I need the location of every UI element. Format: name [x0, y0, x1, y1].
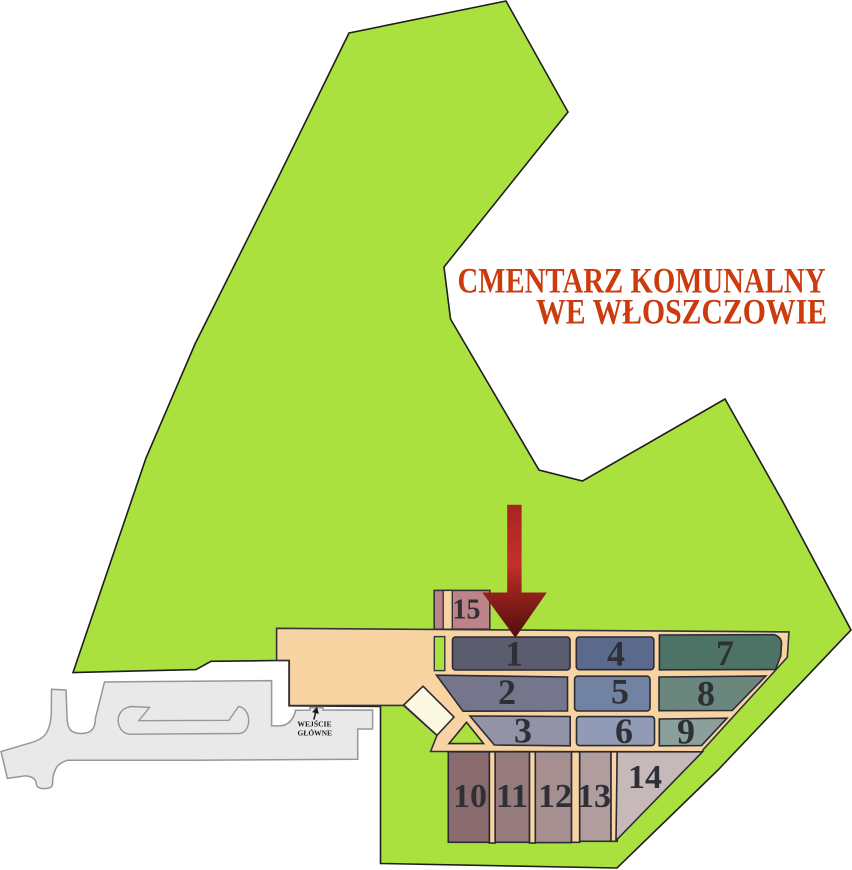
svg-text:13: 13	[577, 778, 611, 815]
svg-text:3: 3	[514, 711, 532, 751]
svg-text:5: 5	[611, 672, 629, 712]
svg-text:1: 1	[505, 634, 523, 674]
svg-text:2: 2	[498, 672, 516, 712]
svg-text:8: 8	[697, 674, 715, 714]
svg-text:4: 4	[607, 634, 625, 674]
svg-text:WEJŚCIE: WEJŚCIE	[297, 720, 332, 728]
svg-text:10: 10	[453, 778, 487, 815]
svg-text:14: 14	[628, 759, 662, 796]
svg-text:6: 6	[615, 711, 633, 751]
svg-text:15: 15	[453, 595, 481, 626]
svg-text:7: 7	[716, 633, 734, 673]
svg-text:12: 12	[538, 778, 572, 815]
svg-text:GŁÓWNE: GŁÓWNE	[298, 730, 333, 738]
svg-text:9: 9	[677, 712, 695, 752]
svg-text:WE WŁOSZCZOWIE: WE WŁOSZCZOWIE	[536, 292, 827, 332]
svg-text:11: 11	[496, 778, 528, 815]
